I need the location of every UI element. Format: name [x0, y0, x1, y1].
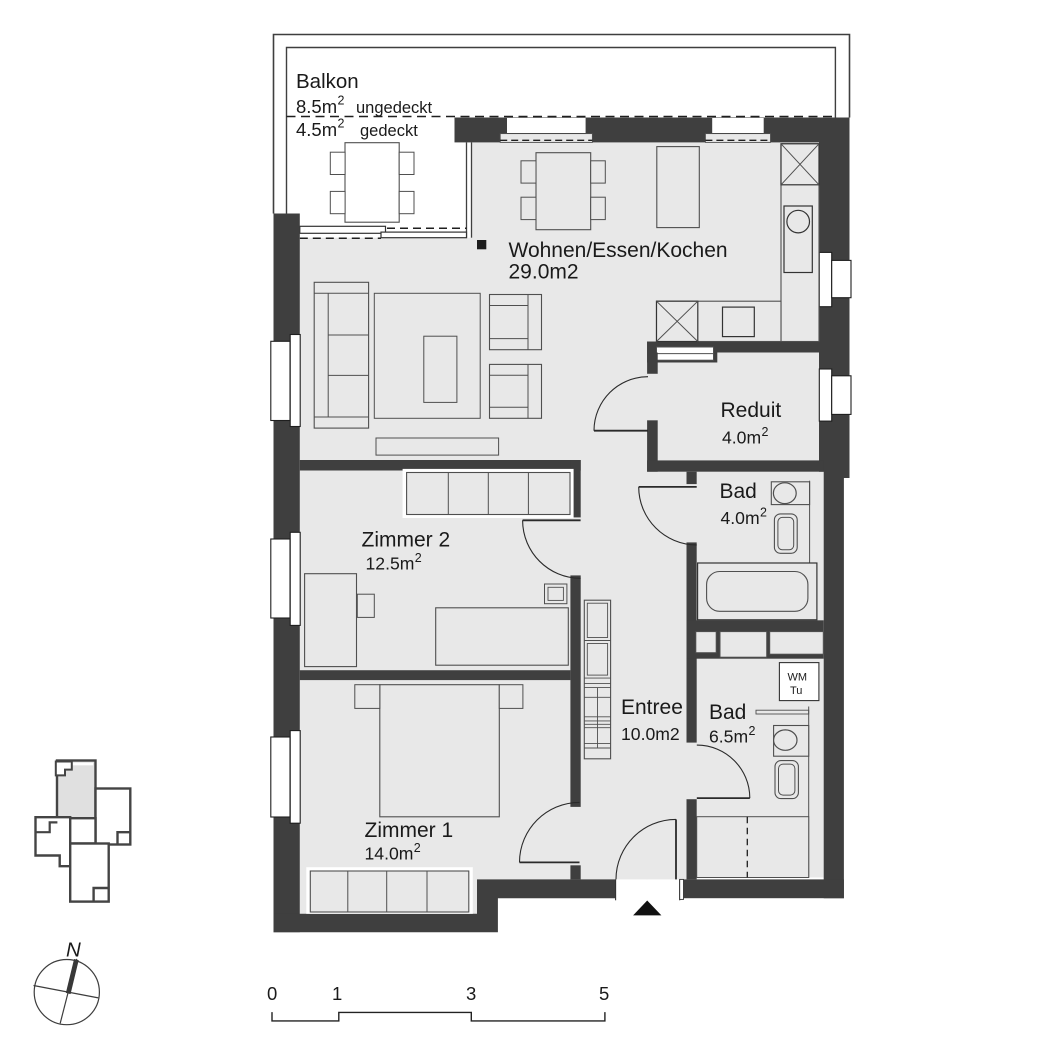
svg-text:Zimmer 1: Zimmer 1	[365, 819, 454, 842]
svg-text:gedeckt: gedeckt	[360, 122, 418, 140]
svg-text:2: 2	[760, 506, 767, 520]
svg-text:Bad: Bad	[709, 701, 746, 724]
svg-text:0: 0	[267, 983, 277, 1004]
svg-text:2: 2	[338, 117, 345, 131]
svg-text:Entree: Entree	[621, 696, 683, 719]
svg-text:Wohnen/Essen/Kochen: Wohnen/Essen/Kochen	[509, 239, 728, 262]
svg-text:4.5m: 4.5m	[296, 119, 337, 140]
svg-text:Balkon: Balkon	[296, 70, 359, 93]
svg-text:3: 3	[466, 983, 476, 1004]
svg-text:29.0m2: 29.0m2	[509, 261, 579, 284]
svg-text:Tu: Tu	[790, 685, 802, 697]
svg-text:4.0m: 4.0m	[721, 508, 760, 528]
svg-text:12.5m: 12.5m	[366, 554, 415, 574]
svg-text:ungedeckt: ungedeckt	[356, 99, 433, 117]
svg-text:8.5m: 8.5m	[296, 96, 337, 117]
svg-text:Reduit: Reduit	[721, 399, 782, 422]
svg-text:2: 2	[414, 841, 421, 855]
svg-text:2: 2	[762, 425, 769, 439]
svg-text:4.0m: 4.0m	[722, 428, 761, 448]
svg-text:Zimmer 2: Zimmer 2	[362, 529, 451, 552]
svg-text:WM: WM	[788, 672, 808, 684]
svg-text:2: 2	[749, 724, 756, 738]
svg-text:Bad: Bad	[720, 480, 757, 503]
svg-text:2: 2	[415, 551, 422, 565]
svg-text:14.0m: 14.0m	[365, 844, 414, 864]
svg-text:1: 1	[332, 983, 342, 1004]
svg-text:5: 5	[599, 983, 609, 1004]
svg-text:6.5m: 6.5m	[709, 727, 748, 747]
svg-text:10.0m2: 10.0m2	[621, 724, 680, 744]
svg-text:N: N	[66, 939, 81, 962]
svg-text:2: 2	[338, 94, 345, 108]
